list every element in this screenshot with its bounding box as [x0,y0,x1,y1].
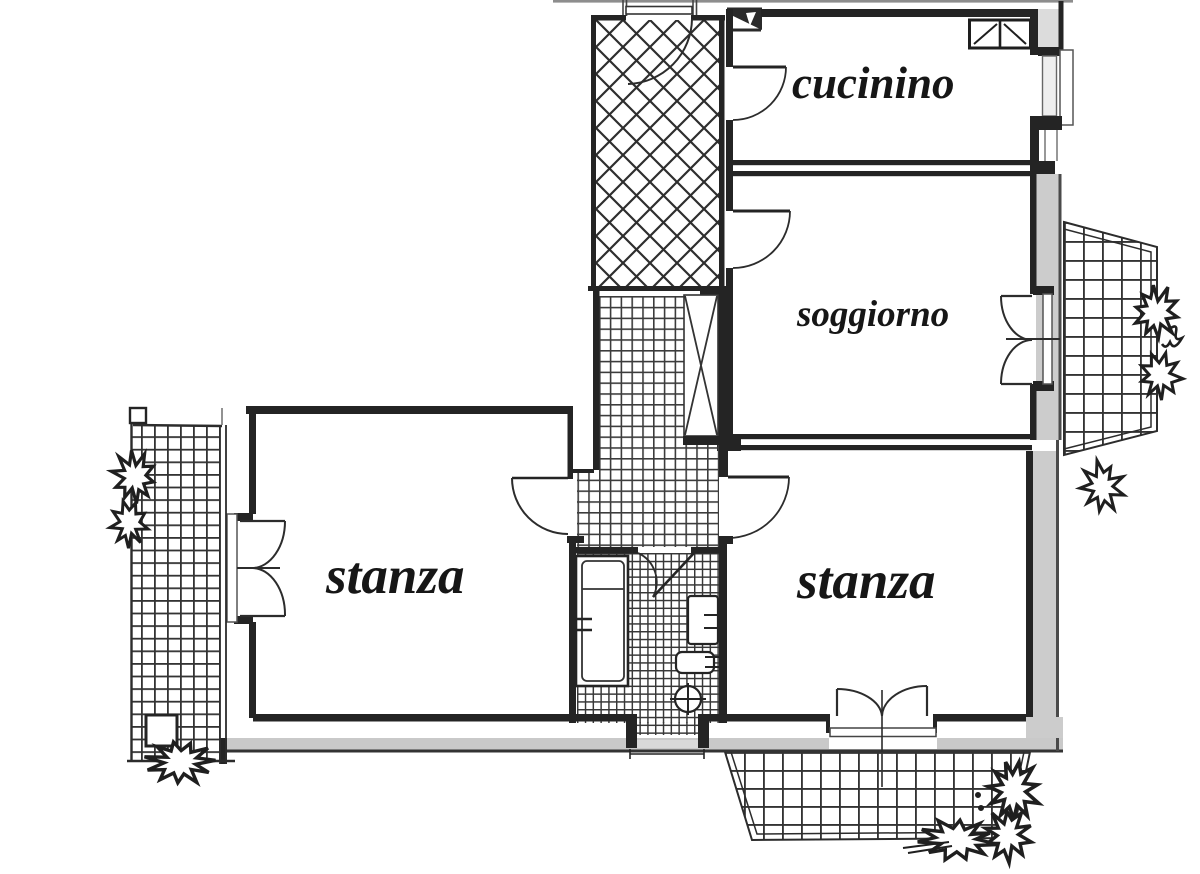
svg-text:cucinino: cucinino [792,58,955,108]
svg-text:soggiorno: soggiorno [796,294,949,335]
svg-text:stanza: stanza [796,552,935,610]
svg-text:stanza: stanza [325,547,464,605]
